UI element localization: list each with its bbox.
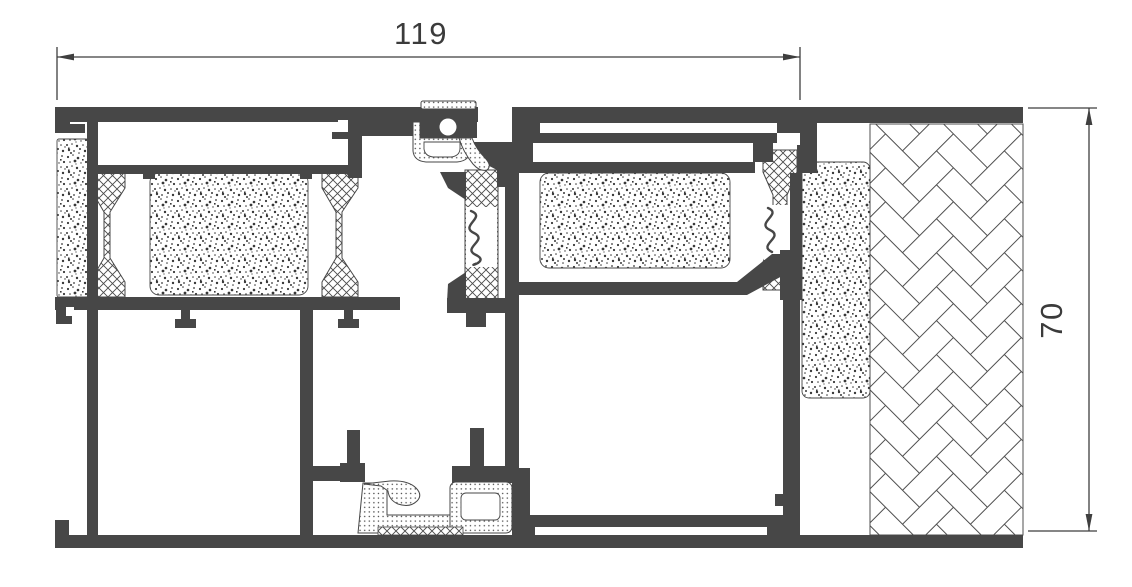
width-dimension-label: 119 xyxy=(394,16,448,51)
dim-arrow-bottom xyxy=(1086,514,1093,531)
frame-top-bar xyxy=(512,107,1023,123)
profile-section-page: 119 70 xyxy=(0,0,1132,587)
sash-top-bar xyxy=(55,107,478,122)
gasket-roller-hole xyxy=(440,119,457,136)
dim-arrow-top xyxy=(1086,108,1093,125)
top-dimension: 119 xyxy=(57,16,800,100)
frame-left-wall xyxy=(505,173,519,470)
bottom-bar xyxy=(55,535,1023,548)
dim-arrow-left xyxy=(57,54,74,61)
height-dimension-label: 70 xyxy=(1034,301,1069,338)
sash-chamber-left-wall xyxy=(87,310,98,548)
profile-section-drawing: 119 70 xyxy=(0,0,1132,587)
dim-arrow-right xyxy=(783,54,800,61)
thermal-break-mid-left xyxy=(322,173,358,297)
foam-core-sash xyxy=(150,173,308,295)
foam-core-frame xyxy=(540,173,730,268)
frame-right-wall xyxy=(783,295,800,535)
masonry-wall-hatch xyxy=(870,124,1023,535)
sash-chamber-right-wall xyxy=(300,310,313,548)
foam-strip-wall-joint xyxy=(802,162,870,398)
gasket-foot-hatch xyxy=(378,527,463,535)
right-dimension: 70 xyxy=(1028,108,1097,531)
sash-outer-web xyxy=(87,122,98,312)
foam-strip-outer-left xyxy=(57,139,88,297)
